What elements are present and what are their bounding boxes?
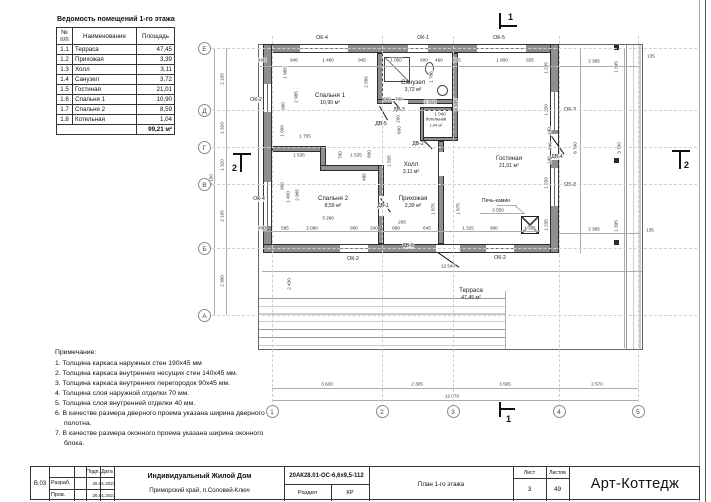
terrace-post bbox=[614, 158, 619, 163]
dimension-label: 460 bbox=[435, 58, 444, 63]
room-label: Прихожая3,39 м² bbox=[399, 195, 428, 209]
window-tag: ОК-4 bbox=[316, 35, 328, 41]
room-name: Гостиная bbox=[496, 155, 522, 162]
dimension-label: 1 235 bbox=[544, 219, 549, 232]
room-area: 3,72 м² bbox=[401, 87, 425, 93]
dimension-label: 1 600 bbox=[496, 58, 509, 63]
axis-bubble: Д bbox=[198, 104, 211, 117]
dimension-label: 1 395 bbox=[614, 61, 619, 74]
doc-code: В.03 bbox=[31, 467, 49, 501]
window-tag: ОК-3 bbox=[564, 182, 576, 188]
dimension-label: 1 480 bbox=[322, 58, 335, 63]
dimension-label: 1 875 bbox=[431, 203, 436, 216]
dimension-label: 1 320 bbox=[220, 122, 225, 135]
dimension-label: 3 550 bbox=[492, 208, 505, 213]
dimension-label: 135 bbox=[646, 228, 655, 233]
axis-grid-line bbox=[212, 184, 697, 185]
section-label: 2 bbox=[232, 163, 237, 173]
section-label: 1 bbox=[508, 12, 513, 22]
sheets-total: 49 bbox=[546, 478, 569, 501]
dim-line bbox=[226, 48, 227, 315]
document-number: 20АК28.01-ОС-6,6х9,5-112 bbox=[284, 467, 369, 484]
dimension-label: 2 570 bbox=[591, 382, 604, 387]
window-tag: ОК-5 bbox=[493, 35, 505, 41]
dim-line bbox=[272, 388, 638, 389]
window-ok3-east bbox=[550, 92, 559, 130]
sheets-label: Листов bbox=[546, 467, 569, 478]
room-area: 10,90 м² bbox=[315, 100, 345, 106]
dimension-label: 1 000 bbox=[280, 125, 285, 138]
axis-bubble: 4 bbox=[553, 405, 566, 418]
dimension-label: 3 730 bbox=[617, 142, 622, 155]
dimension-label: 900 bbox=[280, 182, 285, 191]
row-label-checked: Пров. bbox=[49, 489, 74, 501]
section-cut-mark bbox=[499, 13, 501, 29]
dimension-label: 825 bbox=[526, 58, 535, 63]
window-tag: ОК-2 bbox=[494, 255, 506, 261]
dimension-label: 900 bbox=[350, 226, 359, 231]
section-label: Раздел bbox=[284, 484, 331, 501]
dimension-label: 2 305 bbox=[411, 382, 424, 387]
dim-line bbox=[580, 48, 581, 253]
room-area: 3,39 м² bbox=[399, 203, 428, 209]
axis-grid-line bbox=[212, 147, 697, 148]
room-name: Холл bbox=[403, 161, 419, 168]
room-label: Холл3,11 м² bbox=[403, 161, 419, 175]
dimension-label: 200 bbox=[396, 115, 401, 124]
dimension-label: 945 bbox=[358, 58, 367, 63]
door-tag: ДВ-5 bbox=[375, 121, 387, 127]
dimension-label: 2 105 bbox=[220, 73, 225, 86]
dimension-label: 1 310 bbox=[424, 100, 437, 105]
terrace-post bbox=[614, 240, 619, 245]
dimension-label: 900 bbox=[490, 226, 499, 231]
date-checked: 26.01.2021 bbox=[93, 489, 115, 501]
room-name: Котельная bbox=[426, 117, 446, 122]
door-opening bbox=[439, 152, 444, 176]
dimension-label: 1 985 bbox=[283, 67, 288, 80]
project-name: Индивидуальный Жилой Дом bbox=[115, 469, 284, 484]
section-label: 2 bbox=[684, 160, 689, 170]
room-area: 47,45 м² bbox=[459, 295, 483, 301]
dim-line bbox=[214, 48, 215, 315]
room-name: Прихожая bbox=[399, 195, 428, 202]
dimension-label: 1 320 bbox=[220, 159, 225, 172]
dimension-label: 1 395 bbox=[614, 220, 619, 233]
dimension-label: 1 535 bbox=[293, 153, 306, 158]
sheet-frame-right bbox=[699, 0, 700, 502]
axis-grid-line bbox=[453, 36, 454, 402]
sheet-frame-right-outer bbox=[705, 0, 706, 502]
dim-line bbox=[272, 400, 638, 401]
room-name: Спальня 2 bbox=[318, 195, 348, 202]
dimension-label: 485 bbox=[362, 173, 367, 182]
project-location: Приморский край, п.Соловей-Ключ bbox=[115, 483, 284, 498]
dimension-label: 645 bbox=[423, 226, 432, 231]
dimension-label: 200 bbox=[370, 226, 379, 231]
sheet-label: Лист bbox=[513, 467, 546, 478]
sink bbox=[437, 85, 448, 96]
axis-bubble: В bbox=[198, 178, 211, 191]
dimension-label: 1 875 bbox=[456, 203, 461, 216]
dimension-label: 1 535 bbox=[350, 153, 363, 158]
axis-grid-line bbox=[212, 248, 697, 249]
room-name: Терраса bbox=[459, 287, 483, 294]
section-cut-mark bbox=[233, 153, 251, 155]
dimension-label: 1 325 bbox=[462, 226, 475, 231]
stove-label: Печь-камин bbox=[482, 198, 510, 204]
dim-line bbox=[624, 48, 625, 348]
window-ok2-west bbox=[263, 84, 272, 112]
axis-grid-line bbox=[638, 36, 639, 402]
dimension-label: 3 630 bbox=[321, 382, 334, 387]
dimension-label: 6 790 bbox=[573, 142, 578, 155]
window-tag: ОК-1 bbox=[417, 35, 429, 41]
room-area: 3,11 м² bbox=[403, 169, 419, 175]
company-logo-text: Арт-Коттедж bbox=[569, 467, 701, 501]
axis-grid-line bbox=[212, 110, 697, 111]
dimension-label: 2 365 bbox=[588, 227, 601, 232]
dimension-label: 1 505 bbox=[387, 155, 392, 168]
axis-bubble: 1 bbox=[266, 405, 279, 418]
axis-grid-line bbox=[272, 36, 273, 402]
room-label: Котельная1,04 м² bbox=[426, 117, 446, 128]
axis-grid-line bbox=[212, 315, 697, 316]
dim-line bbox=[559, 233, 640, 234]
room-label: Спальня 28,59 м² bbox=[318, 195, 348, 209]
axis-bubble: 5 bbox=[632, 405, 645, 418]
dimension-label: 2 090 bbox=[306, 226, 319, 231]
dimension-label: 135 bbox=[647, 54, 656, 59]
window-ok4-west bbox=[263, 182, 272, 226]
axis-bubble: А bbox=[198, 309, 211, 322]
section-cut-mark bbox=[499, 408, 515, 410]
dimension-label: 945 bbox=[290, 58, 299, 63]
axis-bubble: 3 bbox=[447, 405, 460, 418]
door-tag: ДВ-1 bbox=[377, 203, 389, 209]
window-ok3-east bbox=[550, 168, 559, 206]
col-header-signature: Подп. bbox=[86, 467, 100, 477]
window-tag: ОК-2 bbox=[347, 256, 359, 262]
dimension-label: 1 755 bbox=[299, 134, 312, 139]
room-label: Спальня 110,90 м² bbox=[315, 92, 345, 106]
wall-interior bbox=[420, 107, 424, 141]
dimension-label: 1 235 bbox=[544, 62, 549, 75]
dimension-label: 600 bbox=[383, 97, 392, 102]
dimension-label: 400 bbox=[258, 226, 267, 231]
dimension-label: 840 bbox=[548, 142, 553, 151]
dimension-label: 1 050 bbox=[390, 58, 403, 63]
dimension-label: 600 bbox=[397, 126, 402, 135]
wall-interior bbox=[320, 165, 384, 171]
dimension-label: 1 766 bbox=[429, 71, 434, 84]
dimension-label: 140 bbox=[547, 127, 552, 136]
drawing-sheet: Ведомость помещений 1-го этажа №п/пНаиме… bbox=[0, 0, 711, 502]
dimension-label: 3 290 bbox=[322, 216, 335, 221]
dimension-label: 1 400 bbox=[286, 191, 291, 204]
window-tag: ОК-2 bbox=[250, 97, 262, 103]
title-block: В.03 Разраб. Пров. Подп. Дата 26.01.2021… bbox=[30, 466, 700, 500]
room-area: 1,04 м² bbox=[426, 123, 446, 128]
dimension-label: 800 bbox=[367, 150, 372, 159]
deck-edge bbox=[505, 291, 506, 349]
dimension-label: 2 105 bbox=[220, 210, 225, 223]
section-cut-mark bbox=[240, 153, 242, 172]
col-header-date: Дата bbox=[100, 467, 114, 477]
dimension-label: 700 bbox=[338, 151, 343, 160]
room-area: 8,59 м² bbox=[318, 203, 348, 209]
dimension-label: 2 085 bbox=[364, 76, 369, 89]
room-label: Санузел3,72 м² bbox=[401, 79, 425, 93]
dimension-label: 12 070 bbox=[444, 394, 459, 399]
room-name: Спальня 1 bbox=[315, 92, 345, 99]
axis-grid-line bbox=[382, 36, 383, 402]
section-cut-mark bbox=[679, 150, 681, 169]
door-tag: ДВ-4 bbox=[551, 154, 563, 160]
dimension-label: 2 985 bbox=[294, 91, 299, 104]
floor-plan: 4009451 4809451 0506004608251 6008252 36… bbox=[0, 0, 711, 502]
axis-bubble: 2 bbox=[376, 405, 389, 418]
sheet-number: 3 bbox=[513, 478, 546, 501]
room-area: 21,01 м² bbox=[496, 163, 522, 169]
dimension-label: 400 bbox=[258, 58, 267, 63]
dim-line bbox=[480, 213, 525, 214]
room-label: Гостиная21,01 м² bbox=[496, 155, 522, 169]
dimension-label: 1 250 bbox=[544, 177, 549, 190]
sheet-name: План 1-го этажа bbox=[369, 467, 513, 501]
dimension-label: 2 430 bbox=[287, 278, 292, 291]
dimension-label: 968 bbox=[392, 226, 401, 231]
dimension-label: 700 bbox=[395, 97, 404, 102]
axis-grid-line bbox=[212, 48, 697, 49]
axis-bubble: Б bbox=[198, 242, 211, 255]
dimension-label: 600 bbox=[420, 58, 429, 63]
section-label: 1 bbox=[506, 414, 511, 424]
section-cut-mark bbox=[499, 25, 517, 27]
dimension-label: 2 965 bbox=[295, 189, 300, 202]
axis-grid-line bbox=[559, 36, 560, 402]
section-value: КР bbox=[331, 484, 369, 501]
window-tag: ОК-4 bbox=[253, 196, 265, 202]
dimension-label: 585 bbox=[281, 226, 290, 231]
dimension-label: 1 325 bbox=[524, 226, 537, 231]
row-label-developed: Разраб. bbox=[49, 477, 74, 489]
room-label: Терраса47,45 м² bbox=[459, 287, 483, 301]
dimension-label: 2 365 bbox=[588, 59, 601, 64]
dim-line bbox=[262, 271, 642, 272]
section-cut-mark bbox=[672, 150, 690, 152]
room-name: Санузел bbox=[401, 79, 425, 86]
dimension-label: 205 bbox=[398, 220, 407, 225]
dim-line bbox=[258, 66, 640, 67]
dimension-label: 2 300 bbox=[220, 275, 225, 288]
dim-line bbox=[262, 231, 540, 232]
dimension-label: 3 565 bbox=[499, 382, 512, 387]
date-developed: 26.01.2021 bbox=[93, 477, 115, 489]
axis-bubble: Г bbox=[198, 141, 211, 154]
axis-bubble: Е bbox=[198, 42, 211, 55]
